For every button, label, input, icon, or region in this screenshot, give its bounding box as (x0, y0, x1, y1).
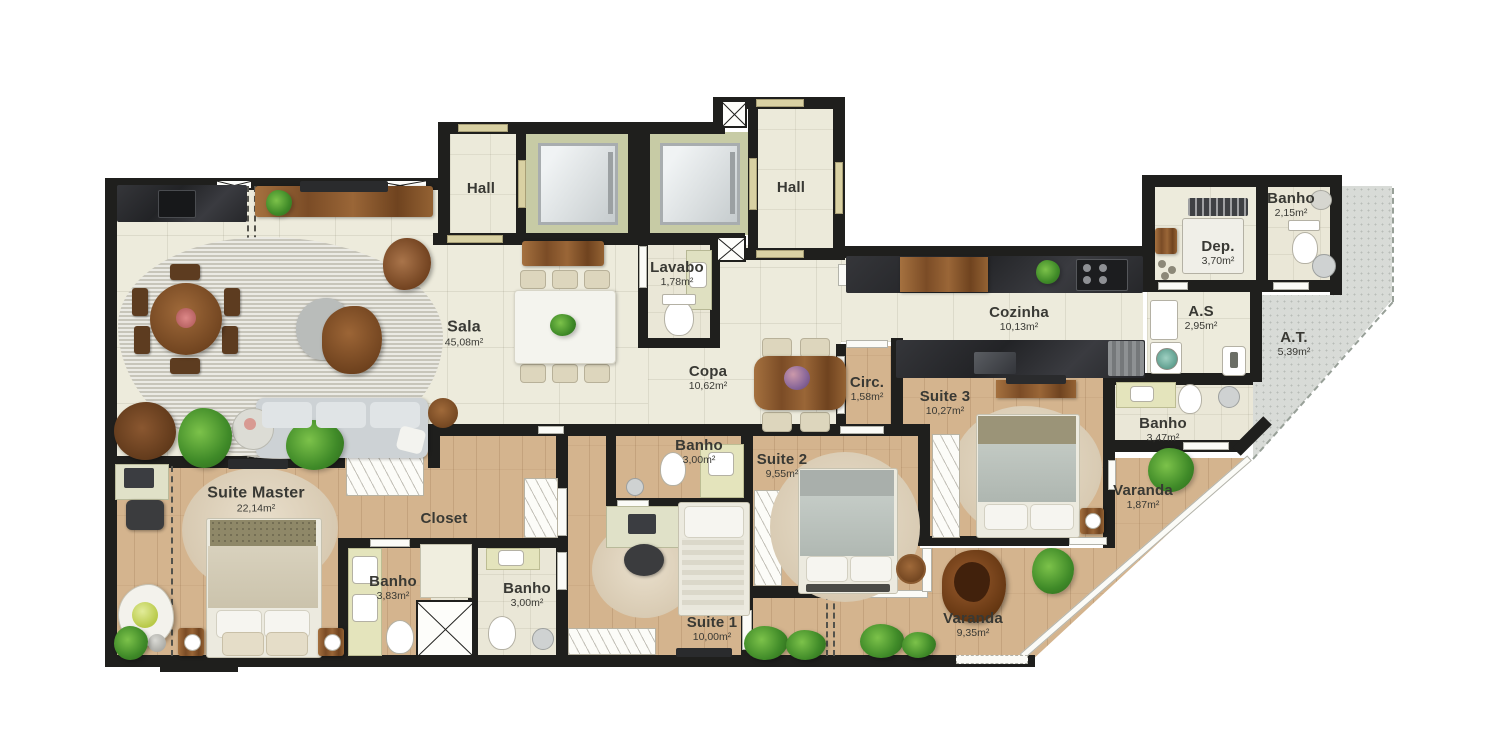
toilet (1178, 384, 1202, 414)
projection-line (826, 594, 828, 656)
room-area: 2,15m² (1267, 208, 1315, 219)
room-area: 10,00m² (687, 632, 738, 643)
label-suite-3: Suite 3 10,27m² (920, 389, 971, 417)
shower-head (1312, 254, 1336, 278)
wall (638, 338, 720, 348)
tv (676, 648, 732, 657)
wardrobe (568, 628, 656, 655)
toilet-tank (662, 294, 696, 305)
room-area: 1,78m² (650, 277, 704, 288)
room-name: Closet (420, 511, 467, 527)
label-hall-esquerdo: Hall (467, 181, 495, 197)
chair (520, 364, 546, 383)
door-hall-direito-lateral (835, 162, 843, 214)
room-area: 5,39m² (1278, 347, 1311, 358)
room-name: Suite Master (207, 486, 305, 503)
bed-pillow (850, 556, 892, 582)
floor-plan: Hall Hall Lavabo 1,78m² Sala 45,08m² Cop… (0, 0, 1500, 754)
outdoor-armchair-cushion (954, 562, 990, 602)
door-hall-esquerdo-elevador (518, 160, 526, 208)
wall (428, 424, 440, 468)
room-area: 1,87m² (1113, 500, 1173, 511)
room-name: Hall (777, 180, 805, 196)
bar-sink (158, 190, 196, 218)
flowers (784, 366, 810, 390)
label-hall-direito: Hall (777, 180, 805, 196)
label-closet: Closet (420, 511, 467, 527)
wall (1250, 282, 1262, 382)
heater-handle (1230, 352, 1238, 368)
sofa-cushion (262, 402, 312, 428)
coffee-table-wood (322, 306, 382, 374)
room-name: Banho (1139, 416, 1187, 432)
door-hall-direito-inferior (756, 250, 804, 258)
door-suite-3-varanda (1069, 537, 1107, 545)
bed-pillow (222, 632, 264, 656)
tv (300, 181, 388, 192)
label-banho-master: Banho 3,83m² (369, 574, 417, 602)
bed-bench (210, 520, 316, 546)
room-area: 2,95m² (1185, 321, 1218, 332)
door-circulacao-superior (846, 340, 888, 348)
toilet (488, 616, 516, 650)
room-area: 3,70m² (1201, 256, 1234, 267)
cooktop-hood (974, 352, 1016, 374)
laundry-tub (1150, 300, 1178, 340)
room-name: Banho (1267, 191, 1315, 207)
room-name: Varanda (1113, 483, 1173, 499)
door-banho-master (370, 539, 410, 547)
bed-duvet (978, 444, 1076, 502)
label-circulacao: Circ. 1,58m² (850, 375, 884, 403)
lamp (1085, 513, 1101, 529)
chair (584, 270, 610, 289)
ventilation-shaft (416, 600, 474, 657)
shower-head (626, 478, 644, 496)
cooktop-burner (1083, 264, 1091, 272)
room-name: Banho (503, 581, 551, 597)
wardrobe (1155, 228, 1177, 254)
bed-duvet (208, 546, 318, 608)
centerpiece (176, 308, 196, 328)
kitchen-cabinet (900, 257, 988, 292)
label-banho-suite-3: Banho 3,47m² (1139, 416, 1187, 444)
wall (628, 132, 650, 235)
wardrobe (932, 434, 960, 538)
shower-head (532, 628, 554, 650)
toilet (664, 300, 694, 336)
chair (584, 364, 610, 383)
dining-chair (134, 326, 150, 354)
room-area: 3,83m² (369, 591, 417, 602)
elevator-1 (538, 143, 618, 225)
bed-headboard (800, 470, 894, 496)
room-area: 22,14m² (207, 503, 305, 514)
label-area-servico: A.S 2,95m² (1185, 304, 1218, 332)
room-name: Cozinha (989, 305, 1049, 321)
room-name: Suite 3 (920, 389, 971, 405)
room-area: 3,00m² (503, 598, 551, 609)
wall (428, 424, 750, 436)
label-banho-social: Banho 3,00m² (675, 438, 723, 466)
room-name: Suite 2 (757, 452, 808, 468)
label-dep: Dep. 3,70m² (1201, 239, 1234, 267)
wall (160, 659, 238, 672)
label-sala: Sala 45,08m² (445, 320, 484, 349)
dining-chair (170, 264, 200, 280)
desk-chair (126, 500, 164, 530)
label-varanda-suite-3: Varanda 1,87m² (1113, 483, 1173, 511)
shower (420, 544, 472, 598)
armchair (114, 402, 176, 460)
label-suite-2: Suite 2 9,55m² (757, 452, 808, 480)
sofa-cushion (316, 402, 366, 428)
chair (520, 270, 546, 289)
room-name: Dep. (1201, 239, 1234, 255)
lamp (324, 634, 341, 651)
chair (552, 270, 578, 289)
clutter (1158, 260, 1166, 268)
room-area: 10,13m² (989, 322, 1049, 333)
door-hall-esquerdo-superior (458, 124, 508, 132)
label-copa: Copa 10,62m² (689, 364, 728, 392)
room-area: 9,55m² (757, 469, 808, 480)
door-elevador-vestibulo (749, 158, 757, 210)
room-area: 10,62m² (689, 381, 728, 392)
label-lavabo: Lavabo 1,78m² (650, 260, 704, 288)
chair (762, 412, 792, 432)
label-suite-master: Suite Master 22,14m² (207, 486, 305, 515)
balcony-railing (956, 655, 1028, 664)
sofa-cushion (370, 402, 420, 428)
elevator-1-rail (608, 152, 613, 214)
room-name: Sala (445, 320, 484, 337)
sink (1130, 386, 1154, 402)
sink (498, 550, 524, 566)
ball-lamp (132, 602, 158, 628)
tv (228, 459, 288, 469)
projection-line (833, 594, 835, 656)
chair (762, 338, 792, 358)
room-area: 9,35m² (943, 628, 1003, 639)
wall (438, 122, 450, 243)
bed-bench (806, 584, 890, 592)
desk-chair (624, 544, 664, 576)
door-ala-intima (538, 426, 564, 434)
room-name: Lavabo (650, 260, 704, 276)
side-table (428, 398, 458, 428)
dining-chair (224, 288, 240, 316)
washer-door (1156, 348, 1178, 370)
door-hall-esquerdo-inferior (447, 235, 503, 243)
label-banho-suite-1: Banho 3,00m² (503, 581, 551, 609)
door-hall-direito-superior (756, 99, 804, 107)
toilet (386, 620, 414, 654)
room-area: 10,27m² (920, 406, 971, 417)
label-cozinha: Cozinha 10,13m² (989, 305, 1049, 333)
shelf-unit (1188, 198, 1248, 216)
bed-pillow (984, 504, 1028, 530)
dining-chair (222, 326, 238, 354)
bed-duvet (800, 496, 894, 556)
door-suite-2 (840, 426, 884, 434)
room-name: Suite 1 (687, 615, 738, 631)
room-name: Varanda (943, 611, 1003, 627)
room-area: 3,47m² (1139, 433, 1187, 444)
console-table (522, 241, 604, 266)
toilet-tank (1288, 220, 1320, 231)
label-banho-servico: Banho 2,15m² (1267, 191, 1315, 219)
island-cabinet (1108, 341, 1144, 376)
lamp (184, 634, 201, 651)
room-area: 45,08m² (445, 337, 484, 348)
wall (1330, 175, 1342, 295)
dining-chair (170, 358, 200, 374)
bed-headboard (978, 416, 1076, 444)
wall (1142, 175, 1155, 292)
label-area-tecnica: A.T. 5,39m² (1278, 330, 1311, 358)
room-name: Copa (689, 364, 728, 380)
room-name: Hall (467, 181, 495, 197)
laptop (628, 514, 656, 534)
chair (552, 364, 578, 383)
chair (800, 412, 830, 432)
closet-shelves (524, 478, 558, 538)
label-suite-1: Suite 1 10,00m² (687, 615, 738, 643)
room-area: 1,58m² (850, 392, 884, 403)
bed-pillow (806, 556, 848, 582)
door-closet-corredor (557, 488, 567, 536)
door-lavabo (639, 246, 647, 288)
room-area: 3,00m² (675, 455, 723, 466)
shower-head (1218, 386, 1240, 408)
bed-pillow (266, 632, 308, 656)
ventilation-shaft (721, 100, 747, 128)
door-dep (1158, 282, 1188, 290)
ventilation-shaft (716, 236, 746, 262)
tv (1006, 375, 1066, 384)
elevator-2 (660, 143, 740, 225)
bed-pillow (1030, 504, 1074, 530)
room-name: A.S (1185, 304, 1218, 320)
laptop (124, 468, 154, 488)
room-name: Banho (675, 438, 723, 454)
label-varanda: Varanda 9,35m² (943, 611, 1003, 639)
dining-chair (132, 288, 148, 316)
area-tecnica-open-edge (1392, 188, 1394, 302)
bed-pillow (684, 506, 744, 538)
chair (800, 338, 830, 358)
door-banho-servico (1273, 282, 1309, 290)
elevator-2-rail (730, 152, 735, 214)
room-name: A.T. (1278, 330, 1311, 346)
vase (148, 634, 166, 652)
bed-duvet (682, 538, 744, 610)
decor (244, 418, 256, 430)
room-name: Circ. (850, 375, 884, 391)
outdoor-table (896, 554, 926, 584)
window-banho-suite-3 (1183, 442, 1229, 450)
door-banho-suite-1 (557, 552, 567, 590)
room-name: Banho (369, 574, 417, 590)
wall (1142, 175, 1342, 187)
